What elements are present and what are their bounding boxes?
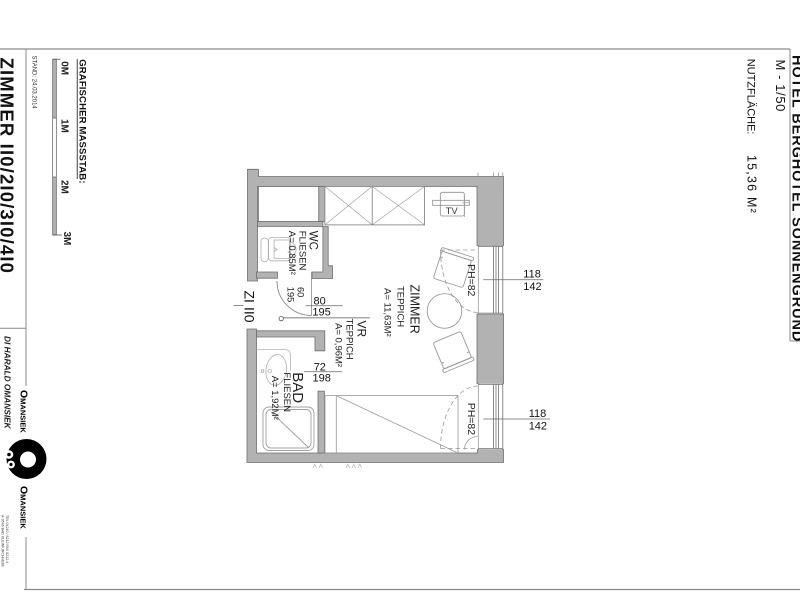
- svg-text:ZI: ZI: [242, 291, 258, 303]
- svg-text:142: 142: [523, 281, 541, 293]
- svg-text:2M: 2M: [59, 180, 70, 194]
- svg-text:PH=82: PH=82: [465, 264, 477, 297]
- svg-text:A-9546 BAD KLEINKIRCHHEIM: A-9546 BAD KLEINKIRCHHEIM: [1, 515, 5, 567]
- svg-text:OMANSIEK: OMANSIEK: [18, 486, 30, 529]
- svg-text:A= 0,96M²: A= 0,96M²: [333, 323, 344, 367]
- svg-text:118: 118: [523, 269, 541, 281]
- svg-text:142: 142: [529, 421, 547, 433]
- svg-text:195: 195: [286, 287, 296, 303]
- svg-text:TEPPICH: TEPPICH: [344, 319, 355, 360]
- svg-text:A= 11,63M²: A= 11,63M²: [382, 288, 393, 337]
- svg-text:NUTZFLÄCHE:: NUTZFLÄCHE:: [745, 59, 757, 135]
- svg-text:FLIESEN: FLIESEN: [281, 372, 292, 412]
- svg-text:M - 1/50: M - 1/50: [773, 60, 788, 112]
- svg-text:II0: II0: [242, 307, 258, 323]
- svg-text:0M: 0M: [59, 61, 70, 75]
- svg-text:TEL 04240 / 8212 FAX 8212-4: TEL 04240 / 8212 FAX 8212-4: [5, 515, 9, 563]
- svg-text:DI HARALD OMANSIEK: DI HARALD OMANSIEK: [3, 336, 13, 430]
- svg-text:STAND: 24.03.2014: STAND: 24.03.2014: [31, 56, 37, 110]
- svg-text:TEPPICH: TEPPICH: [395, 286, 406, 327]
- svg-text:FLIESEN: FLIESEN: [297, 231, 308, 271]
- svg-text:3M: 3M: [61, 232, 72, 246]
- svg-text:A= 1,92M²: A= 1,92M²: [269, 376, 280, 420]
- svg-text:OMANSIEK: OMANSIEK: [18, 390, 30, 433]
- svg-text:HOTEL BERGHOTEL SONNENGRUND: HOTEL BERGHOTEL SONNENGRUND: [788, 55, 800, 342]
- svg-text:TV: TV: [446, 206, 459, 217]
- svg-text:GRAFISCHER MASSSTAB:: GRAFISCHER MASSSTAB:: [77, 59, 88, 183]
- svg-text:ZIMMER: ZIMMER: [408, 285, 422, 334]
- svg-text:PH=82: PH=82: [465, 403, 477, 436]
- svg-text:1M: 1M: [59, 119, 70, 133]
- svg-text:15,36 M²: 15,36 M²: [745, 155, 759, 214]
- svg-text:60: 60: [296, 287, 306, 297]
- svg-text:ZIMMER II0/2I0/3I0/4I0: ZIMMER II0/2I0/3I0/4I0: [0, 58, 18, 275]
- svg-text:118: 118: [529, 408, 547, 420]
- svg-text:195: 195: [312, 306, 330, 318]
- svg-text:198: 198: [313, 373, 331, 385]
- svg-text:VR: VR: [355, 321, 369, 338]
- svg-text:A= 0,85M²: A= 0,85M²: [286, 231, 297, 275]
